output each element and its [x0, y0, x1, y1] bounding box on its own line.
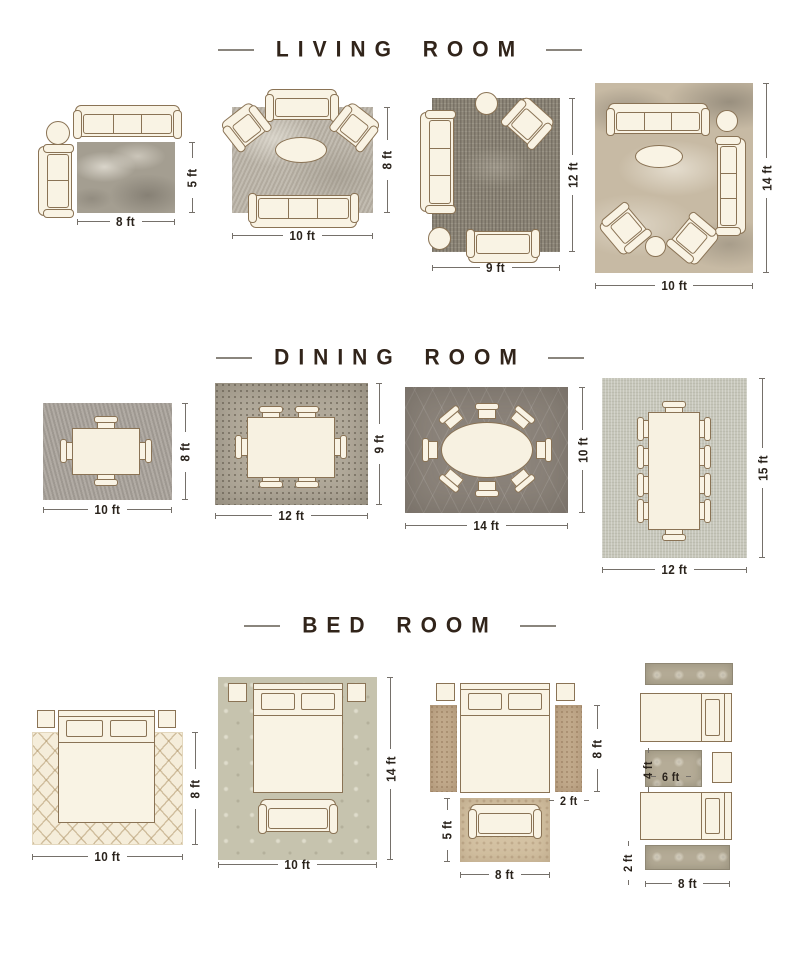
dimension-line — [572, 195, 573, 252]
dimension-label: 12 ft — [662, 563, 688, 576]
dimension-label: 10 ft — [567, 437, 597, 463]
nightstand — [712, 752, 732, 783]
front-rug-height-dimension: 5 ft — [439, 798, 455, 862]
dimension-line — [762, 378, 763, 448]
pillow — [705, 699, 720, 736]
height-dimension: 14 ft — [758, 83, 774, 273]
dimension-line — [648, 787, 649, 792]
runner-rug — [645, 663, 733, 685]
dimension-line — [405, 525, 467, 526]
dimension-line — [185, 472, 186, 501]
loveseat — [468, 231, 538, 263]
oval-dining-table — [441, 422, 533, 478]
dimension-label: 8 ft — [117, 215, 136, 228]
loveseat — [38, 146, 72, 216]
width-dimension: 10 ft — [43, 502, 172, 517]
dimension-label: 8 ft — [582, 739, 612, 758]
width-dimension: 12 ft — [215, 508, 368, 523]
dimension-line — [390, 677, 391, 749]
header-dash — [548, 357, 584, 359]
dimension-label: 8 ft — [678, 877, 697, 890]
dimension-line — [512, 267, 560, 268]
dimension-line — [766, 83, 767, 158]
round-side-table — [716, 110, 738, 132]
dining-chair — [475, 403, 499, 419]
dimension-line — [460, 874, 489, 875]
pillow — [66, 720, 103, 737]
dimension-label: 10 ft — [290, 229, 316, 242]
height-dimension: 8 ft — [379, 107, 395, 213]
dimension-line — [703, 883, 730, 884]
dimension-label: 9 ft — [364, 435, 394, 454]
sofa-cushions — [616, 112, 700, 131]
height-dimension: 8 ft — [589, 705, 605, 792]
sofa-cushions — [47, 154, 69, 208]
rug-size-guide: LIVING ROOM 8 ft 5 ft 10 ft 8 ft 9 ft 12… — [0, 0, 800, 978]
mid-rug-width-dimension: 6 ft — [651, 769, 702, 784]
dimension-line — [447, 798, 448, 810]
nightstand — [158, 710, 176, 728]
bed — [253, 683, 343, 793]
runner-rug — [430, 705, 457, 792]
height-dimension: 8 ft — [187, 732, 203, 845]
pillow — [110, 720, 147, 737]
dimension-line — [651, 776, 656, 777]
section-title: LIVING ROOM — [276, 37, 524, 62]
twin-bed — [640, 792, 732, 840]
header-dash — [218, 49, 254, 51]
sofa-cushions — [258, 198, 349, 219]
dimension-line — [32, 856, 88, 857]
height-dimension: 9 ft — [371, 383, 387, 505]
dimension-line — [648, 748, 649, 753]
twin-bed — [640, 693, 732, 742]
section-title: DINING ROOM — [274, 345, 526, 370]
height-dimension: 15 ft — [754, 378, 770, 558]
dimension-label: 5 ft — [177, 168, 207, 187]
sofa-cushions — [476, 234, 530, 254]
nightstand — [228, 683, 247, 702]
dimension-line — [77, 221, 110, 222]
section-header-dining-room: DINING ROOM — [0, 346, 800, 370]
section-title: BED ROOM — [302, 613, 498, 638]
bench-cushion — [268, 808, 328, 829]
runner-rug — [645, 845, 730, 870]
pillows — [261, 693, 335, 710]
pillows — [66, 720, 147, 737]
dimension-line — [582, 470, 583, 513]
section-header-bed-room: BED ROOM — [0, 614, 800, 638]
height-dimension: 10 ft — [574, 387, 590, 513]
round-side-table — [475, 92, 498, 115]
dimension-label: 9 ft — [487, 261, 506, 274]
dimension-label: 8 ft — [180, 779, 210, 798]
sofa-cushions — [83, 114, 172, 134]
dimension-line — [317, 864, 377, 865]
dimension-label: 10 ft — [661, 279, 687, 292]
dimension-line — [232, 235, 283, 236]
width-dimension: 10 ft — [218, 857, 377, 872]
three-seat-sofa — [250, 195, 357, 228]
dimension-label: 14 ft — [375, 756, 405, 782]
width-dimension: 10 ft — [595, 278, 753, 293]
dimension-line — [215, 515, 272, 516]
dimension-label: 8 ft — [496, 868, 515, 881]
header-dash — [216, 357, 252, 359]
dimension-label: 8 ft — [170, 442, 200, 461]
dimension-line — [218, 864, 278, 865]
round-side-table — [46, 121, 70, 145]
dimension-line — [694, 569, 747, 570]
runner-rug — [555, 705, 582, 792]
oval-coffee-table — [635, 145, 683, 168]
header-dash — [520, 625, 556, 627]
width-dimension: 14 ft — [405, 518, 568, 533]
dimension-line — [387, 180, 388, 213]
dimension-line — [693, 285, 753, 286]
dimension-line — [762, 488, 763, 558]
bed — [58, 710, 155, 823]
dimension-line — [645, 883, 672, 884]
dimension-label: 12 ft — [279, 509, 305, 522]
dimension-line — [506, 525, 568, 526]
dimension-line — [127, 509, 172, 510]
dimension-line — [322, 235, 373, 236]
dining-table — [247, 417, 335, 478]
pillow — [705, 798, 720, 834]
rug — [77, 142, 175, 213]
dimension-line — [602, 569, 655, 570]
dimension-label: 10 ft — [95, 850, 121, 863]
dimension-line — [185, 403, 186, 432]
dimension-line — [390, 789, 391, 861]
dimension-line — [521, 874, 550, 875]
nightstand — [436, 683, 455, 701]
dimension-line — [628, 880, 629, 885]
dimension-line — [43, 509, 88, 510]
dimension-line — [597, 769, 598, 793]
dimension-line — [628, 841, 629, 846]
dimension-line — [192, 198, 193, 214]
round-side-table — [428, 227, 451, 250]
dimension-label: 10 ft — [285, 858, 311, 871]
dimension-label: 15 ft — [747, 455, 777, 481]
height-dimension: 14 ft — [382, 677, 398, 860]
pillow — [261, 693, 295, 710]
height-dimension: 12 ft — [564, 98, 580, 252]
loveseat — [267, 89, 337, 120]
width-dimension: 12 ft — [602, 562, 747, 577]
dimension-line — [597, 705, 598, 729]
dimension-line — [379, 383, 380, 424]
dimension-line — [195, 809, 196, 846]
width-dimension: 10 ft — [32, 849, 183, 864]
dimension-label: 10 ft — [95, 503, 121, 516]
height-dimension: 5 ft — [184, 142, 200, 213]
sofa-cushions — [429, 120, 451, 204]
bench-cushion — [478, 813, 532, 834]
bench — [260, 799, 336, 832]
dimension-label: 5 ft — [432, 821, 462, 840]
dimension-line — [387, 107, 388, 140]
dining-chair — [536, 438, 552, 462]
dimension-line — [192, 142, 193, 158]
dimension-line — [549, 800, 554, 801]
width-dimension: 9 ft — [432, 260, 560, 275]
three-seat-sofa — [608, 103, 708, 134]
bed — [460, 683, 550, 793]
width-dimension: 8 ft — [460, 867, 550, 882]
dimension-line — [311, 515, 368, 516]
dimension-label: 2 ft — [560, 795, 578, 807]
header-dash — [244, 625, 280, 627]
round-side-table — [645, 236, 666, 257]
dimension-line — [195, 732, 196, 769]
three-seat-sofa — [420, 112, 454, 212]
section-header-living-room: LIVING ROOM — [0, 38, 800, 62]
pillow — [508, 693, 542, 710]
sofa-cushions — [720, 146, 737, 226]
dimension-label: 14 ft — [751, 165, 781, 191]
pillow — [301, 693, 335, 710]
dimension-line — [432, 267, 480, 268]
runner-height-dimension: 2 ft — [620, 841, 636, 874]
dimension-label: 2 ft — [616, 854, 640, 872]
dimension-label: 14 ft — [474, 519, 500, 532]
nightstand — [37, 710, 55, 728]
header-dash — [546, 49, 582, 51]
dining-chair — [475, 481, 499, 497]
pillow — [468, 693, 502, 710]
dimension-line — [584, 800, 589, 801]
width-dimension: 10 ft — [232, 228, 373, 243]
oval-coffee-table — [275, 137, 327, 163]
width-dimension: 8 ft — [77, 214, 175, 229]
pillows — [468, 693, 542, 710]
nightstand — [556, 683, 575, 701]
dimension-line — [447, 850, 448, 862]
dimension-line — [595, 285, 655, 286]
dimension-line — [582, 387, 583, 430]
dimension-line — [127, 856, 183, 857]
dining-table — [648, 412, 700, 530]
width-dimension: 8 ft — [645, 876, 730, 891]
three-seat-sofa — [75, 105, 180, 137]
dimension-line — [686, 776, 691, 777]
height-dimension: 8 ft — [177, 403, 193, 500]
dining-chair — [422, 438, 438, 462]
dimension-label: 12 ft — [557, 162, 587, 188]
bench — [470, 804, 540, 837]
dimension-line — [766, 198, 767, 273]
sofa-cushions — [275, 98, 329, 117]
nightstand — [347, 683, 366, 702]
dimension-line — [142, 221, 175, 222]
runner-width-dimension: 2 ft — [549, 793, 593, 808]
dimension-label: 6 ft — [662, 771, 680, 783]
dining-table — [72, 428, 140, 475]
dimension-line — [572, 98, 573, 155]
dimension-line — [379, 464, 380, 505]
dimension-label: 8 ft — [372, 151, 402, 170]
three-seat-sofa — [717, 138, 746, 234]
